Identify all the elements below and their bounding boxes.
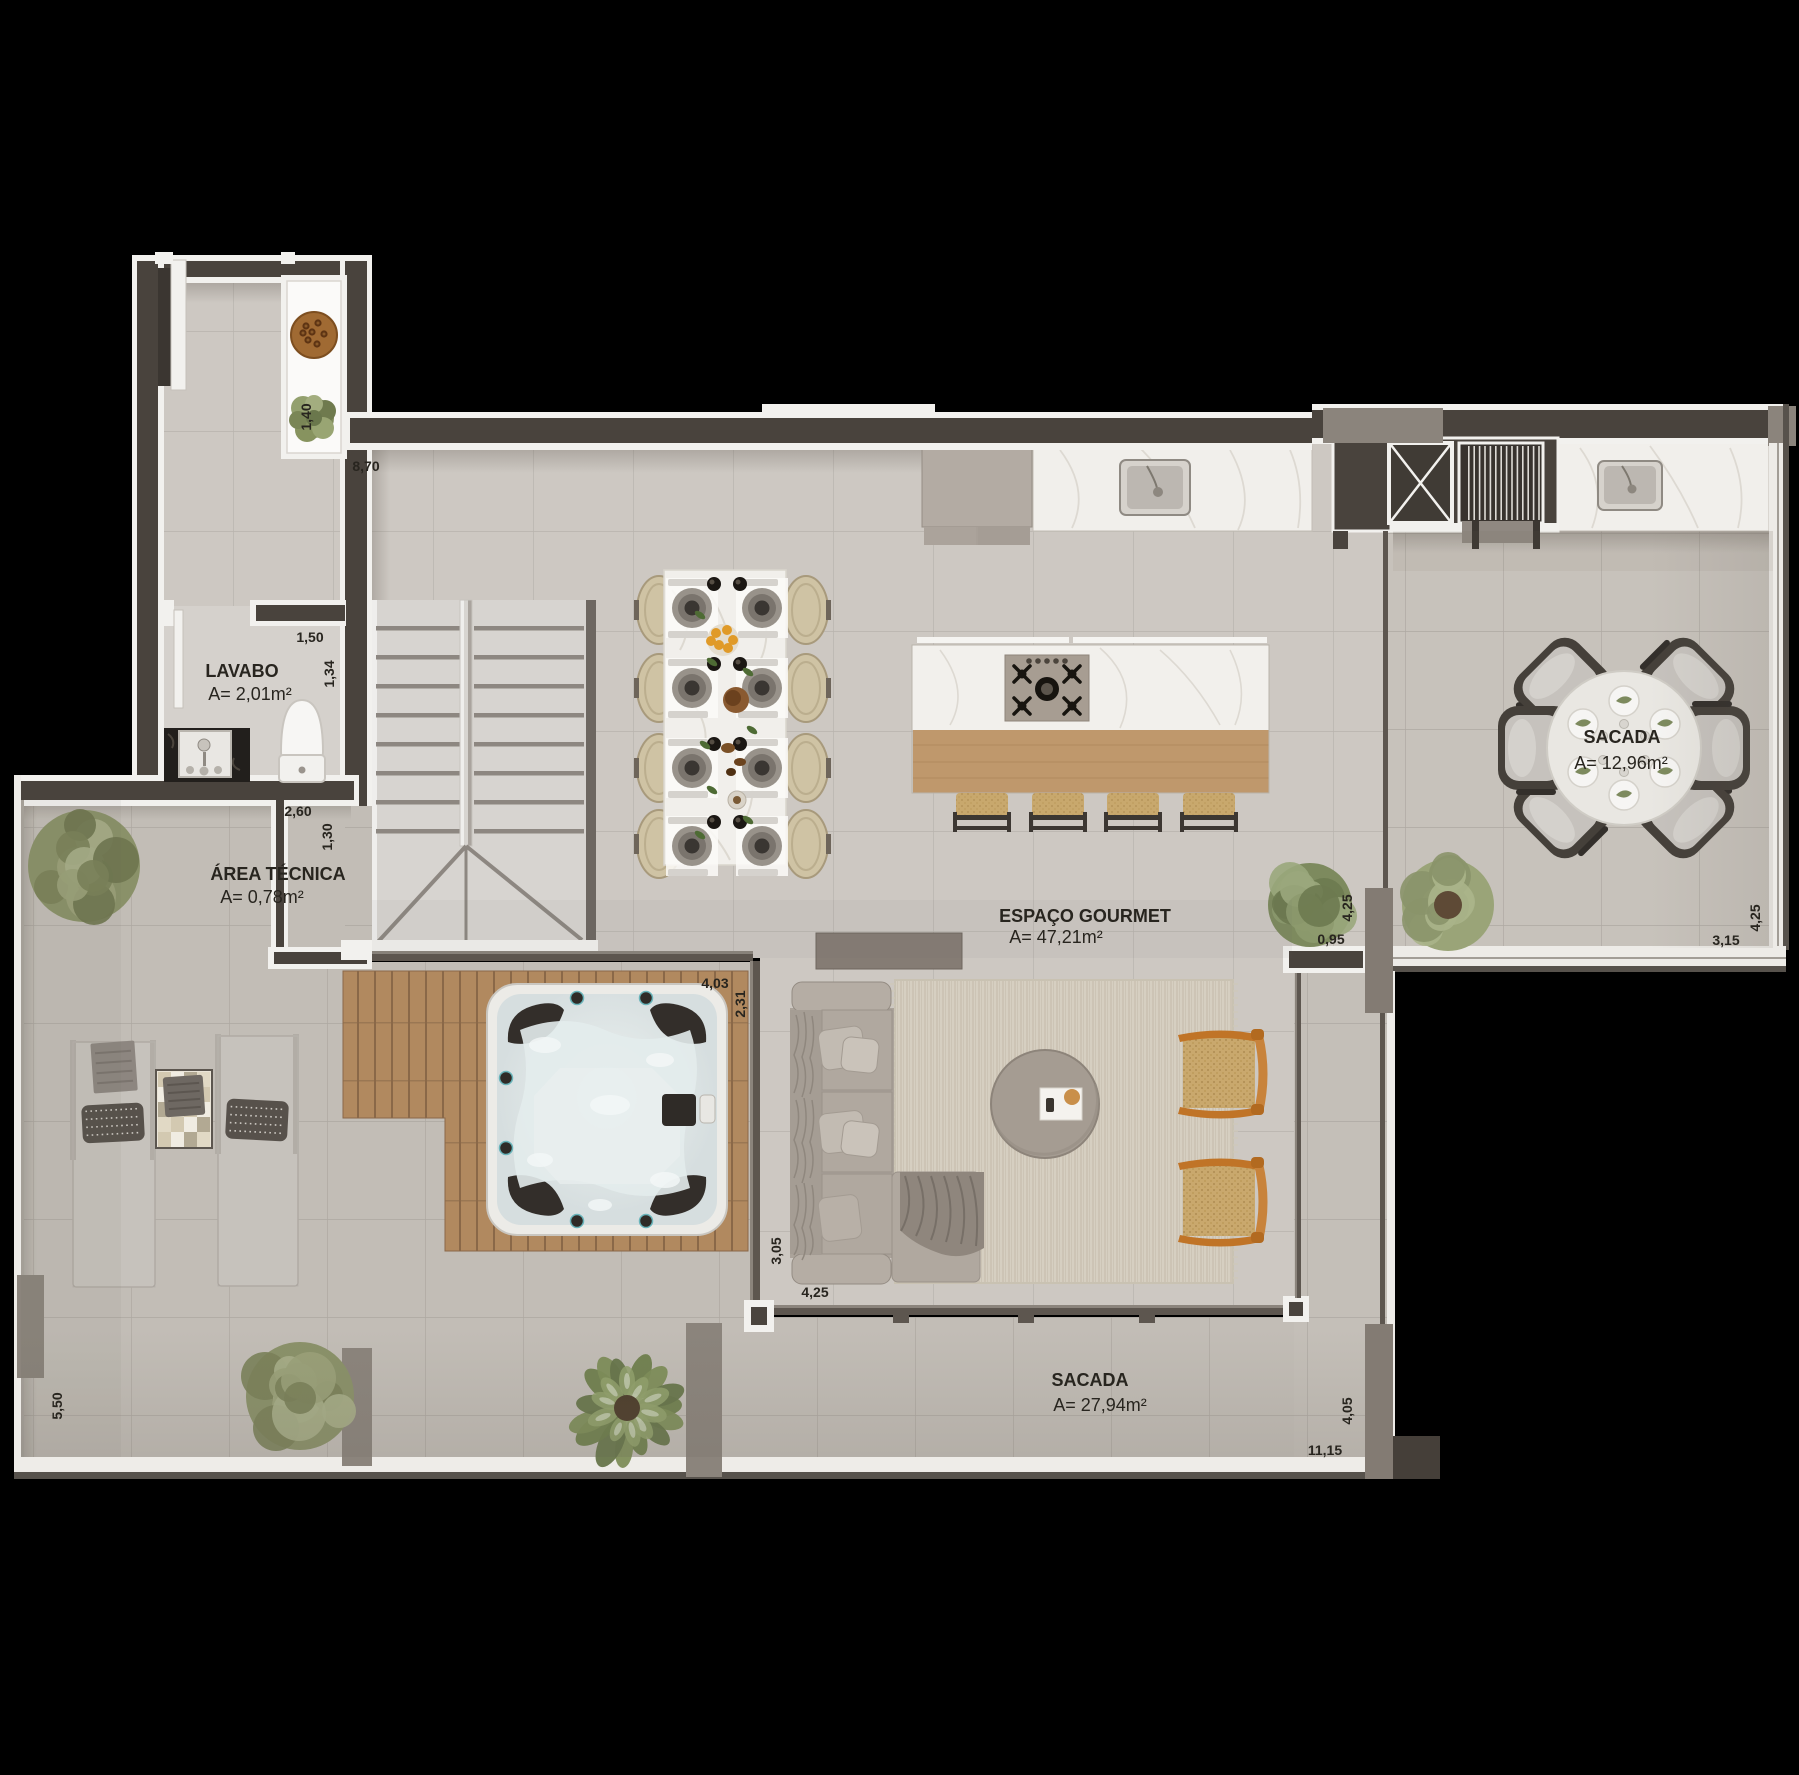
svg-text:4,03: 4,03: [701, 975, 728, 991]
svg-text:ÁREA TÉCNICA: ÁREA TÉCNICA: [210, 863, 345, 884]
svg-text:A= 12,96m²: A= 12,96m²: [1574, 753, 1668, 773]
svg-text:A= 27,94m²: A= 27,94m²: [1053, 1395, 1147, 1415]
svg-text:1,30: 1,30: [319, 823, 335, 850]
svg-text:2,31: 2,31: [732, 990, 748, 1017]
svg-text:SACADA: SACADA: [1583, 727, 1660, 747]
svg-text:4,05: 4,05: [1339, 1397, 1355, 1424]
svg-text:3,15: 3,15: [1712, 932, 1739, 948]
svg-text:1,40: 1,40: [298, 403, 314, 430]
svg-text:0,95: 0,95: [1317, 931, 1344, 947]
svg-text:2,60: 2,60: [284, 803, 311, 819]
svg-text:1,50: 1,50: [296, 629, 323, 645]
svg-text:A= 0,78m²: A= 0,78m²: [220, 887, 304, 907]
svg-text:8,70: 8,70: [352, 458, 379, 474]
svg-text:5,50: 5,50: [49, 1392, 65, 1419]
svg-text:1,34: 1,34: [321, 660, 337, 687]
svg-text:ESPAÇO GOURMET: ESPAÇO GOURMET: [999, 906, 1171, 926]
svg-text:A= 47,21m²: A= 47,21m²: [1009, 927, 1103, 947]
svg-text:SACADA: SACADA: [1051, 1370, 1128, 1390]
svg-text:3,05: 3,05: [768, 1237, 784, 1264]
svg-text:LAVABO: LAVABO: [205, 661, 278, 681]
svg-text:4,25: 4,25: [1747, 904, 1763, 931]
svg-text:4,25: 4,25: [801, 1284, 828, 1300]
svg-text:11,15: 11,15: [1308, 1442, 1342, 1458]
svg-text:4,25: 4,25: [1339, 894, 1355, 921]
svg-text:A= 2,01m²: A= 2,01m²: [208, 684, 292, 704]
